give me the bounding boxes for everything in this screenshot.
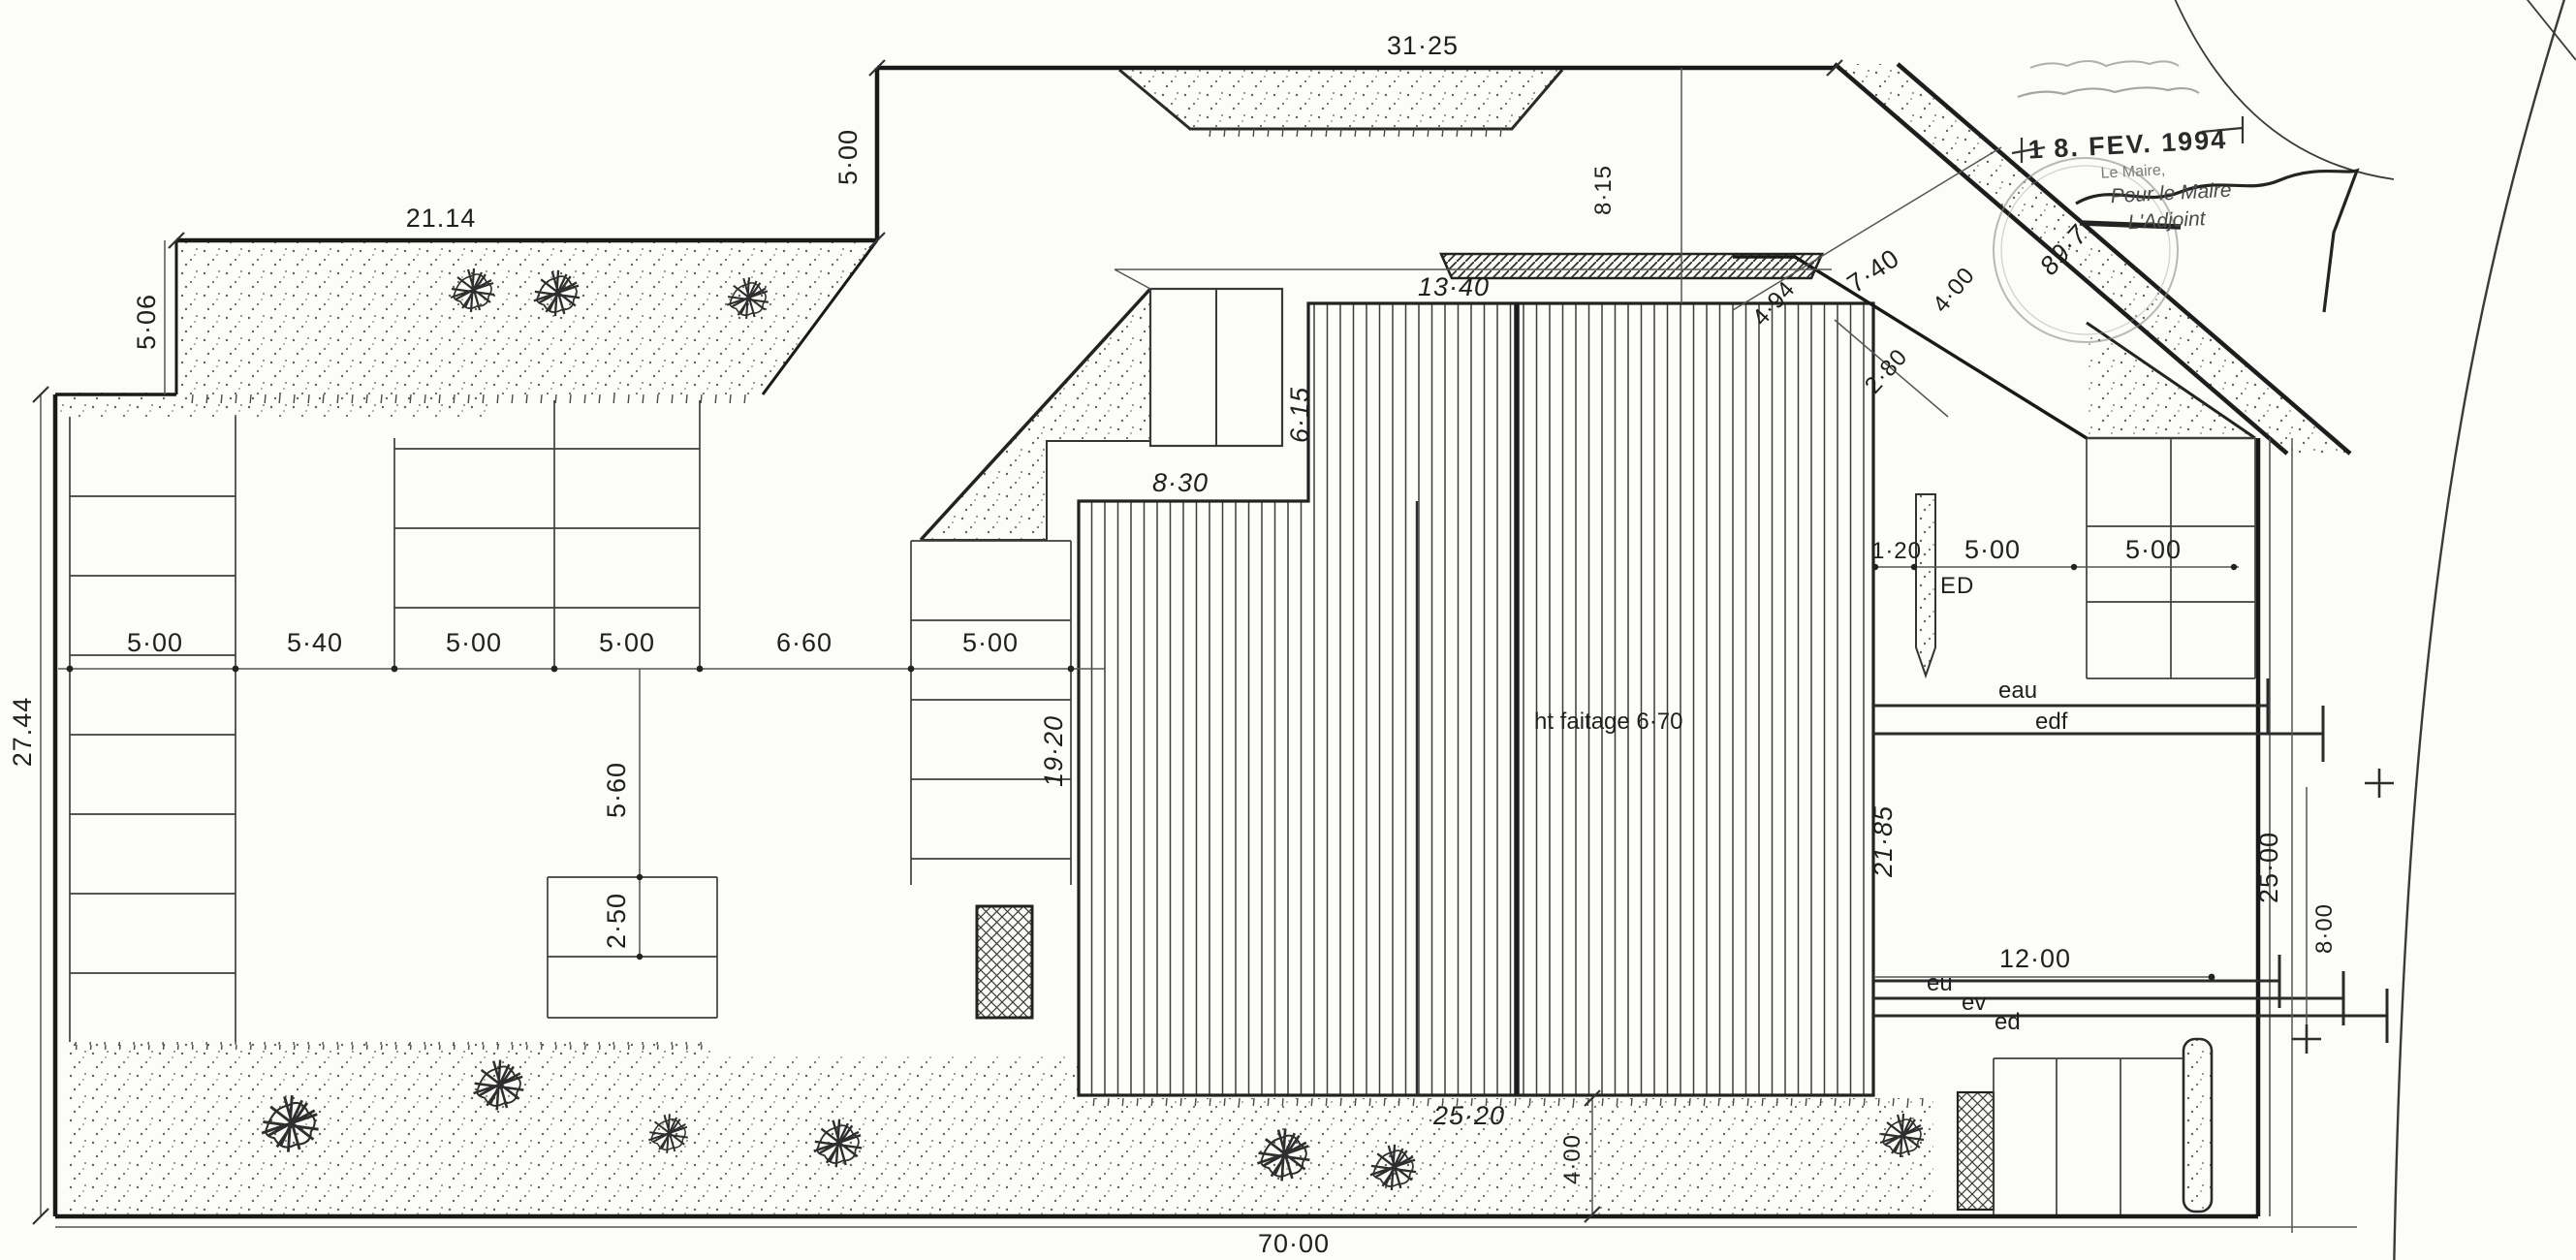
dim-bldg-step: 6·15 [1285,387,1314,443]
dim-bldg-bottom: 25·20 [1432,1101,1505,1130]
dim-row-3: 5·00 [599,628,655,657]
stamp-signatory: L'Adjoint [2127,207,2207,234]
scanned-site-plan-page: 31·25 21.14 5·00 5·06 27.44 5·00 5·40 5·… [0,0,2576,1260]
ridge-height-note: ht faitage 6·70 [1534,709,1682,735]
dim-top-left-band: 21.14 [406,204,477,233]
dim-bottom-strip: 4·00 [1559,1134,1586,1184]
stamp-authority: Le Maire, [2100,162,2166,181]
dim-left-leg: 5·00 [833,129,863,185]
dim-row-1: 5·40 [287,628,343,657]
ed-marker: ED [1940,573,1974,599]
hatched-planting-bed [977,906,1032,1018]
dim-right-a: 1·20 [1871,538,1922,564]
utility-sewage-label: eu [1927,970,1953,996]
dim-row-4: 6·60 [776,628,832,657]
dim-bldg-upper-left: 8·30 [1152,468,1209,497]
dim-mid-gap: 5·60 [602,762,631,818]
dim-right-c: 5·00 [2125,535,2182,564]
utility-electricity-label: edf [2035,709,2068,735]
dim-stall-depth: 2·50 [602,893,631,949]
dim-left-height: 27.44 [8,697,37,768]
building-footprint [1079,254,1873,1095]
dim-bldg-right: 21·85 [1869,805,1898,878]
dim-bottom-total: 70·00 [1258,1229,1330,1258]
dim-row-2: 5·00 [446,628,502,657]
dim-right-b: 5·00 [1964,535,2021,564]
dim-bldg-top: 13·40 [1418,272,1490,301]
dim-right-offset: 8·00 [2311,903,2338,954]
dim-top-total: 31·25 [1387,31,1459,60]
dim-row-5: 5·00 [962,628,1019,657]
utility-waste-label: ev [1962,990,1986,1016]
dim-utility-span: 12·00 [1999,944,2071,973]
dim-right-edge: 25·00 [2254,832,2283,903]
site-plan: 31·25 21.14 5·00 5·06 27.44 5·00 5·40 5·… [0,0,2576,1260]
dim-bldg-left: 19·20 [1039,715,1068,787]
dim-row-0: 5·00 [127,628,183,657]
utility-water-label: eau [1998,677,2037,704]
utility-drain-label: ed [1995,1009,2021,1035]
dim-left-band-depth: 5·06 [132,294,161,350]
dim-top-offset: 8·15 [1590,165,1617,215]
